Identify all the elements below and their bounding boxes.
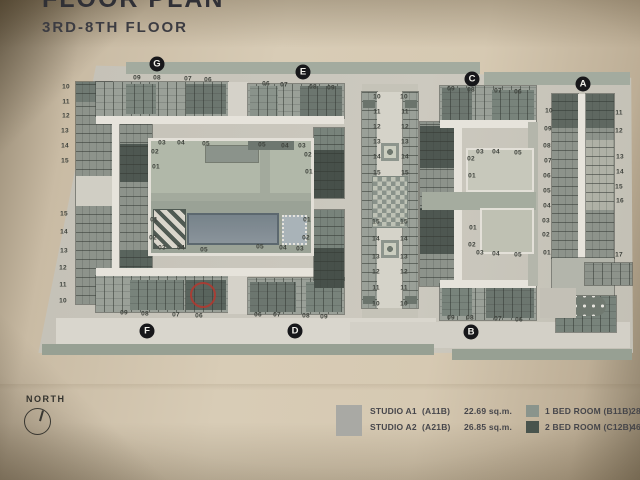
unit-number: 07 — [544, 158, 552, 165]
unit-number: 06 — [515, 317, 523, 324]
unit-number: 06 — [262, 81, 270, 88]
unit-number: 04 — [279, 245, 287, 252]
unit-number: 01 — [152, 164, 160, 171]
unit-number: 13 — [401, 139, 409, 146]
unit-number: 14 — [401, 154, 409, 161]
unit-number: 08 — [309, 84, 317, 91]
unit-number: 04 — [492, 149, 500, 156]
unit-number: 10 — [62, 84, 70, 91]
unit-number: 06 — [543, 173, 551, 180]
section-badge-f: F — [140, 324, 155, 339]
unit-number: 07 — [494, 88, 502, 95]
unit-number: 02 — [467, 156, 475, 163]
unit-number: 13 — [616, 154, 624, 161]
unit-number: 05 — [202, 141, 210, 148]
unit-number: 14 — [372, 236, 380, 243]
unit-number: 06 — [195, 313, 203, 320]
unit-number: 15 — [373, 170, 381, 177]
section-badge-d: D — [288, 324, 303, 339]
unit-number: 10 — [400, 94, 408, 101]
section-badge-e: E — [296, 65, 311, 80]
unit-number: 15 — [615, 184, 623, 191]
unit-number: 14 — [373, 154, 381, 161]
unit-number: 02 — [468, 242, 476, 249]
unit-number: 10 — [400, 301, 408, 308]
unit-number: 17 — [615, 252, 623, 259]
unit-number: 07 — [273, 312, 281, 319]
unit-number: 14 — [61, 143, 69, 150]
unit-number: 04 — [492, 251, 500, 258]
unit-number: 16 — [616, 198, 624, 205]
unit-number: 08 — [467, 87, 475, 94]
unit-number: 05 — [543, 188, 551, 195]
unit-number: 12 — [400, 269, 408, 276]
unit-number: 07 — [184, 76, 192, 83]
unit-number: 11 — [401, 109, 408, 116]
unit-number: 10 — [372, 301, 380, 308]
unit-number: 15 — [400, 219, 408, 226]
unit-number: 10 — [59, 298, 67, 305]
unit-number: 05 — [200, 247, 208, 254]
unit-number: 02 — [151, 149, 159, 156]
unit-number: 09 — [133, 75, 141, 82]
section-badge-b: B — [464, 325, 479, 340]
unit-number: 11 — [372, 285, 379, 292]
unit-number: 13 — [60, 248, 68, 255]
section-badge-a: A — [576, 77, 591, 92]
unit-number: 09 — [447, 315, 455, 322]
unit-number: 06 — [254, 312, 262, 319]
unit-number: 09 — [447, 86, 455, 93]
unit-number: 04 — [543, 203, 551, 210]
unit-number: 13 — [372, 254, 380, 261]
unit-number: 03 — [476, 250, 484, 257]
unit-number: 03 — [476, 149, 484, 156]
unit-number: 03 — [158, 245, 166, 252]
plan-annotations: 0908070606070809090807060908070606070809… — [0, 0, 640, 480]
unit-number: 06 — [514, 89, 522, 96]
unit-number: 14 — [400, 236, 408, 243]
unit-number: 10 — [545, 108, 553, 115]
unit-number: 11 — [400, 285, 407, 292]
unit-number: 07 — [494, 316, 502, 323]
unit-number: 05 — [514, 252, 522, 259]
unit-number: 10 — [373, 94, 381, 101]
section-badge-c: C — [465, 72, 480, 87]
unit-number: 11 — [59, 282, 66, 289]
unit-number: 03 — [298, 143, 306, 150]
unit-number: 08 — [543, 143, 551, 150]
unit-number: 15 — [401, 170, 409, 177]
unit-number: 15 — [372, 219, 380, 226]
unit-number: 13 — [61, 128, 69, 135]
unit-number: 14 — [60, 229, 68, 236]
unit-number: 13 — [400, 254, 408, 261]
unit-number: 12 — [401, 124, 409, 131]
red-pen-circle-annotation — [190, 282, 216, 308]
unit-number: 15 — [60, 211, 68, 218]
unit-number: 13 — [373, 139, 381, 146]
unit-number: 11 — [615, 110, 622, 117]
unit-number: 12 — [372, 269, 380, 276]
unit-number: 01 — [469, 225, 477, 232]
unit-number: 05 — [514, 150, 522, 157]
unit-number: 02 — [542, 232, 550, 239]
unit-number: 15 — [61, 158, 69, 165]
unit-number: 11 — [62, 99, 69, 106]
unit-number: 12 — [62, 113, 70, 120]
unit-number: 07 — [280, 82, 288, 89]
unit-number: 01 — [150, 217, 158, 224]
unit-number: 02 — [302, 235, 310, 242]
unit-number: 01 — [468, 173, 476, 180]
unit-number: 08 — [141, 311, 149, 318]
unit-number: 12 — [373, 124, 381, 131]
unit-number: 05 — [258, 142, 266, 149]
unit-number: 11 — [373, 109, 380, 116]
section-badge-g: G — [150, 57, 165, 72]
unit-number: 07 — [172, 312, 180, 319]
unit-number: 01 — [305, 169, 313, 176]
unit-number: 03 — [158, 140, 166, 147]
unit-number: 01 — [303, 217, 311, 224]
unit-number: 08 — [153, 75, 161, 82]
unit-number: 04 — [281, 143, 289, 150]
unit-number: 01 — [543, 250, 551, 257]
unit-number: 09 — [320, 314, 328, 321]
unit-number: 03 — [542, 218, 550, 225]
unit-number: 04 — [177, 140, 185, 147]
floor-plan-photo-page: FLOOR PLAN 3RD-8TH FLOOR — [0, 0, 640, 480]
unit-number: 05 — [256, 244, 264, 251]
unit-number: 12 — [59, 265, 67, 272]
unit-number: 14 — [616, 169, 624, 176]
unit-number: 06 — [204, 77, 212, 84]
unit-number: 02 — [304, 152, 312, 159]
unit-number: 02 — [149, 235, 157, 242]
unit-number: 08 — [302, 313, 310, 320]
unit-number: 04 — [177, 245, 185, 252]
unit-number: 08 — [466, 315, 474, 322]
unit-number: 09 — [327, 85, 335, 92]
unit-number: 12 — [615, 128, 623, 135]
unit-number: 09 — [544, 126, 552, 133]
unit-number: 09 — [120, 310, 128, 317]
unit-number: 03 — [296, 246, 304, 253]
